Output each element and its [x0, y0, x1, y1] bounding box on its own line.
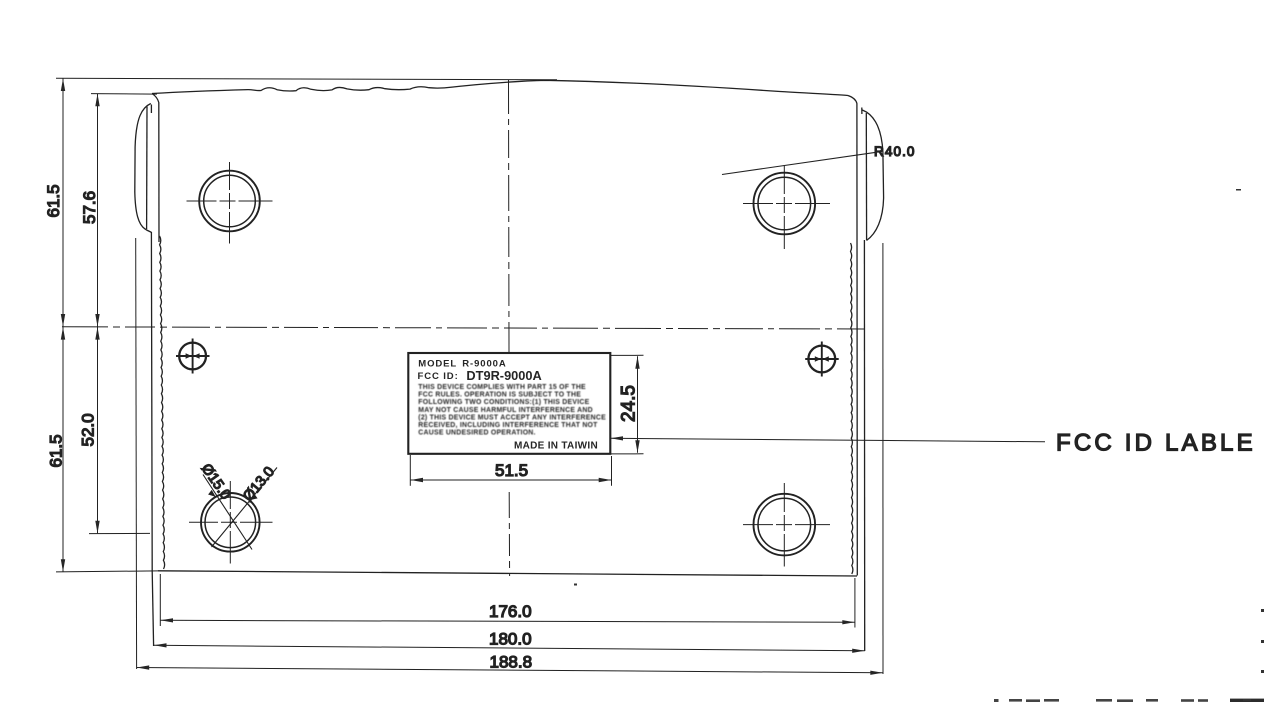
svg-text:176.0: 176.0 — [489, 602, 532, 621]
svg-text:FOLLOWING TWO CONDITIONS:(1) T: FOLLOWING TWO CONDITIONS:(1) THIS DEVICE — [418, 399, 589, 406]
svg-text:FCC RULES. OPERATION IS SUBJEC: FCC RULES. OPERATION IS SUBJECT TO THE — [418, 392, 581, 399]
svg-text:FCC ID LABLE: FCC ID LABLE — [1056, 430, 1256, 457]
svg-text:180.0: 180.0 — [489, 630, 532, 649]
svg-text:FCC ID:: FCC ID: — [418, 371, 459, 382]
svg-text:52.0: 52.0 — [79, 413, 98, 446]
svg-text:61.5: 61.5 — [44, 184, 63, 217]
svg-text:Ø13.0: Ø13.0 — [240, 464, 278, 505]
svg-text:R40.0: R40.0 — [874, 144, 916, 159]
svg-text:RECEIVED, INCLUDING INTERFEREN: RECEIVED, INCLUDING INTERFERENCE THAT NO… — [418, 422, 598, 429]
svg-text:57.6: 57.6 — [80, 191, 99, 224]
svg-text:CAUSE UNDESIRED OPERATION.: CAUSE UNDESIRED OPERATION. — [418, 430, 535, 437]
svg-text:51.5: 51.5 — [495, 461, 528, 480]
svg-text:MODEL: MODEL — [418, 359, 457, 370]
svg-text:(2) THIS DEVICE MUST ACCEPT AN: (2) THIS DEVICE MUST ACCEPT ANY INTERFER… — [418, 414, 606, 421]
svg-text:61.5: 61.5 — [47, 434, 66, 467]
svg-text:MAY NOT CAUSE HARMFUL INTERFER: MAY NOT CAUSE HARMFUL INTERFERENCE AND — [418, 407, 593, 414]
svg-text:THIS DEVICE COMPLIES WITH PART: THIS DEVICE COMPLIES WITH PART 15 OF THE — [418, 384, 586, 391]
svg-text:188.8: 188.8 — [490, 653, 533, 672]
svg-text:MADE IN TAIWIN: MADE IN TAIWIN — [514, 440, 598, 451]
svg-text:DT9R-9000A: DT9R-9000A — [466, 368, 541, 383]
svg-text:24.5: 24.5 — [619, 385, 640, 422]
